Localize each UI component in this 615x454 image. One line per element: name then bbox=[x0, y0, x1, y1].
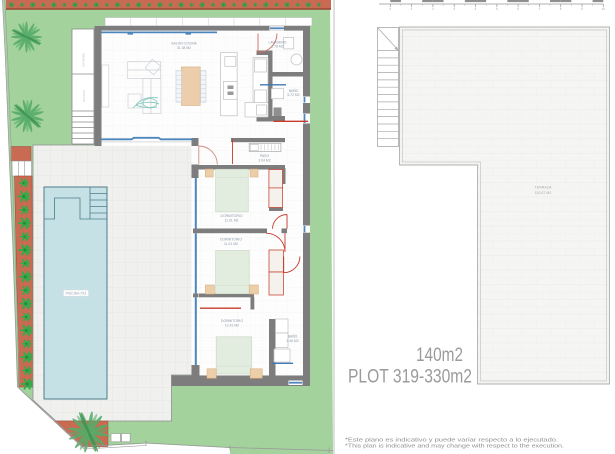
svg-text:DORMITORIO: DORMITORIO bbox=[221, 319, 243, 323]
svg-text:DORMITORIO: DORMITORIO bbox=[221, 214, 243, 218]
svg-text:3.46 M2: 3.46 M2 bbox=[286, 339, 298, 343]
svg-text:11.01 M2: 11.01 M2 bbox=[224, 242, 238, 246]
svg-text:TERRAZA: TERRAZA bbox=[535, 186, 552, 190]
svg-text:31.38 M2: 31.38 M2 bbox=[177, 46, 191, 50]
svg-text:2.78 M2: 2.78 M2 bbox=[271, 45, 283, 49]
svg-text:ACCESO: ACCESO bbox=[82, 89, 86, 102]
svg-text:SALON COCINA: SALON COCINA bbox=[171, 42, 197, 46]
svg-text:110.07 M2: 110.07 M2 bbox=[535, 191, 552, 195]
svg-text:3.04 M2: 3.04 M2 bbox=[258, 158, 270, 162]
svg-text:5.72 M2: 5.72 M2 bbox=[287, 93, 299, 97]
svg-text:BAÑO: BAÑO bbox=[288, 334, 298, 339]
svg-text:PLOT 319-330m2: PLOT 319-330m2 bbox=[348, 366, 472, 388]
svg-text:ENTRADA: ENTRADA bbox=[82, 53, 86, 66]
svg-text:DORMITORIO: DORMITORIO bbox=[220, 238, 242, 242]
svg-text:PISCINA 7X3: PISCINA 7X3 bbox=[66, 292, 86, 296]
svg-text:11.01 M2: 11.01 M2 bbox=[225, 219, 239, 223]
svg-text:12.41 M2: 12.41 M2 bbox=[225, 324, 239, 328]
svg-text:*This plan is indicative and m: *This plan is indicative and may change … bbox=[345, 444, 565, 450]
svg-text:10: 10 bbox=[602, 7, 606, 11]
svg-text:140m2: 140m2 bbox=[416, 344, 463, 366]
